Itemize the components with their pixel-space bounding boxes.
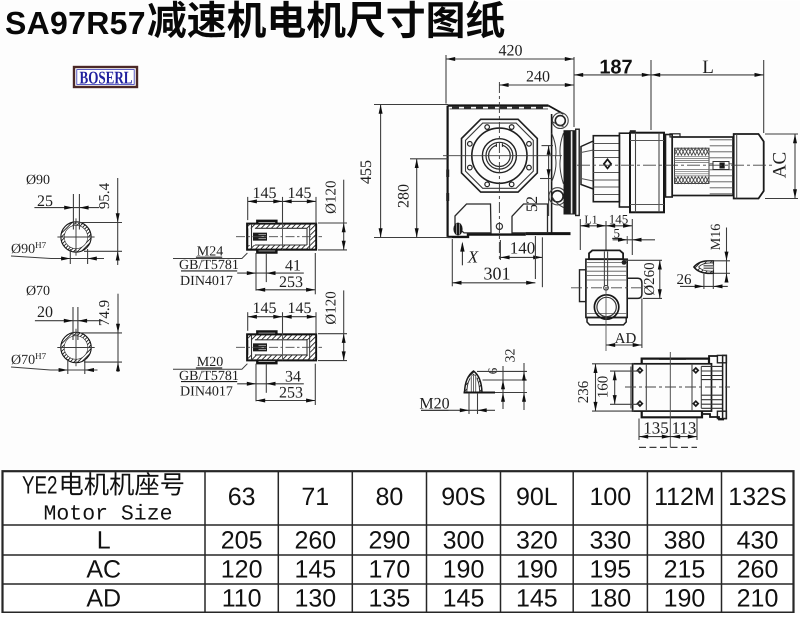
svg-text:236: 236 bbox=[576, 380, 592, 403]
svg-text:BOSERL: BOSERL bbox=[79, 68, 132, 88]
svg-text:300: 300 bbox=[443, 526, 485, 554]
svg-text:80: 80 bbox=[375, 483, 403, 511]
svg-text:6: 6 bbox=[485, 367, 500, 374]
svg-text:210: 210 bbox=[737, 585, 779, 613]
svg-text:145: 145 bbox=[443, 585, 485, 613]
svg-text:380: 380 bbox=[664, 526, 706, 554]
svg-text:L: L bbox=[97, 526, 111, 554]
svg-text:260: 260 bbox=[294, 526, 336, 554]
svg-text:430: 430 bbox=[737, 526, 779, 554]
svg-text:145: 145 bbox=[252, 300, 276, 317]
svg-text:DIN4017: DIN4017 bbox=[180, 274, 233, 289]
svg-text:34: 34 bbox=[285, 368, 301, 385]
svg-text:140: 140 bbox=[510, 239, 536, 258]
svg-text:160: 160 bbox=[595, 376, 611, 399]
svg-text:320: 320 bbox=[516, 526, 558, 554]
svg-text:AD: AD bbox=[615, 331, 637, 347]
svg-text:170: 170 bbox=[368, 556, 410, 584]
svg-text:74.9: 74.9 bbox=[97, 300, 113, 326]
svg-text:YE2: YE2 bbox=[22, 472, 58, 500]
svg-text:190: 190 bbox=[443, 556, 485, 584]
svg-text:90L: 90L bbox=[516, 483, 558, 511]
svg-text:145: 145 bbox=[294, 556, 336, 584]
svg-text:113: 113 bbox=[672, 418, 697, 437]
svg-text:253: 253 bbox=[279, 385, 303, 402]
svg-text:145: 145 bbox=[287, 185, 311, 202]
svg-text:95.4: 95.4 bbox=[97, 182, 113, 209]
svg-text:120: 120 bbox=[221, 556, 263, 584]
svg-text:253: 253 bbox=[279, 274, 303, 291]
svg-text:Ø120: Ø120 bbox=[323, 181, 339, 214]
svg-text:145: 145 bbox=[252, 185, 276, 202]
svg-text:195: 195 bbox=[589, 556, 631, 584]
svg-text:M16: M16 bbox=[709, 224, 724, 250]
svg-text:AC: AC bbox=[86, 556, 121, 584]
svg-text:240: 240 bbox=[526, 69, 550, 86]
svg-text:110: 110 bbox=[222, 585, 262, 613]
svg-text:AC: AC bbox=[769, 152, 790, 178]
svg-text:132S: 132S bbox=[728, 483, 786, 511]
svg-text:130: 130 bbox=[294, 585, 336, 613]
svg-text:20: 20 bbox=[37, 304, 53, 321]
svg-text:Motor Size: Motor Size bbox=[43, 503, 172, 527]
svg-text:330: 330 bbox=[589, 526, 631, 554]
svg-text:Ø260: Ø260 bbox=[642, 262, 658, 295]
svg-text:290: 290 bbox=[368, 526, 410, 554]
svg-text:DIN4017: DIN4017 bbox=[180, 385, 233, 400]
svg-text:190: 190 bbox=[516, 556, 558, 584]
svg-text:420: 420 bbox=[498, 43, 522, 60]
svg-text:Ø90: Ø90 bbox=[26, 173, 50, 188]
svg-text:135: 135 bbox=[368, 585, 410, 613]
svg-text:AD: AD bbox=[86, 585, 121, 613]
svg-text:100: 100 bbox=[589, 483, 631, 511]
svg-text:112M: 112M bbox=[654, 483, 715, 511]
svg-text:145: 145 bbox=[516, 585, 558, 613]
svg-text:215: 215 bbox=[664, 556, 706, 584]
svg-text:63: 63 bbox=[228, 483, 256, 511]
svg-text:X: X bbox=[467, 248, 479, 267]
svg-text:90S: 90S bbox=[441, 483, 485, 511]
svg-text:Ø70: Ø70 bbox=[26, 284, 50, 299]
svg-text:301: 301 bbox=[483, 263, 510, 283]
svg-text:205: 205 bbox=[221, 526, 263, 554]
svg-text:145: 145 bbox=[287, 300, 311, 317]
svg-text:135: 135 bbox=[643, 418, 669, 437]
svg-text:260: 260 bbox=[737, 556, 779, 584]
svg-text:455: 455 bbox=[358, 160, 375, 184]
svg-text:L1: L1 bbox=[584, 212, 597, 226]
svg-text:32: 32 bbox=[503, 349, 518, 363]
svg-text:26: 26 bbox=[676, 272, 692, 288]
svg-text:SA97R57: SA97R57 bbox=[5, 5, 146, 41]
svg-text:280: 280 bbox=[395, 184, 412, 208]
svg-text:180: 180 bbox=[589, 585, 631, 613]
svg-text:190: 190 bbox=[664, 585, 706, 613]
svg-text:Ø120: Ø120 bbox=[323, 291, 339, 324]
svg-text:41: 41 bbox=[285, 258, 301, 275]
svg-text:52: 52 bbox=[524, 196, 541, 212]
svg-text:145: 145 bbox=[609, 211, 629, 226]
svg-text:71: 71 bbox=[301, 483, 329, 511]
